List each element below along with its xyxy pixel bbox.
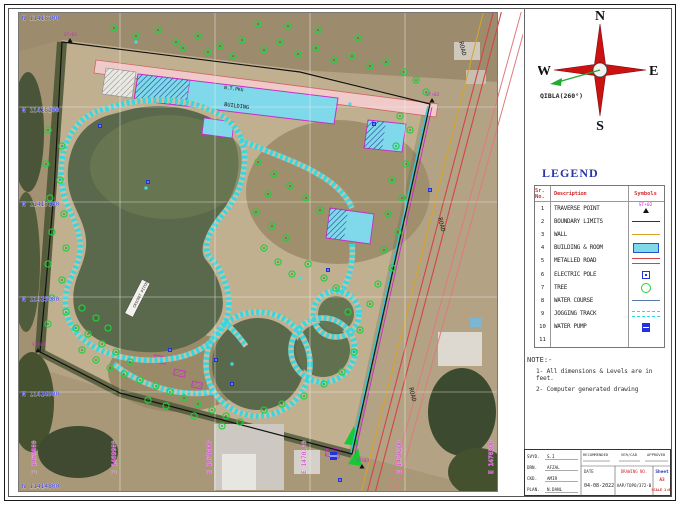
legend-row-number: 11 [535, 334, 551, 347]
tree-center [147, 399, 149, 401]
tb-drawing-no: AAP/TOPO/372-B [617, 483, 652, 488]
easting-label: E 1470100 [301, 440, 308, 474]
legend-row: 3WALL [535, 228, 664, 241]
tree-center [281, 403, 283, 405]
easting-label: E 1470300 [488, 440, 495, 474]
easting-label: E 1470000 [206, 440, 213, 474]
tree-center [193, 415, 195, 417]
tree-center [95, 317, 97, 319]
tree-center [109, 367, 111, 369]
legend-row-description: JOGGING TRACK [551, 308, 629, 321]
site-map: ST+01ST+02ST+03ST+04 ROADROADROADB.T.PKG… [18, 12, 523, 492]
legend-row-description: METALLED ROAD [551, 255, 629, 268]
tree-center [61, 145, 63, 147]
tree-center [113, 27, 115, 29]
tree-center [353, 351, 355, 353]
legend-table: Sr. No. Description Symbols 1TRAVERSE PO… [534, 185, 665, 348]
legend-row-symbol [629, 242, 662, 255]
tree-center [232, 55, 234, 57]
tree-center [47, 263, 49, 265]
tree-center [315, 47, 317, 49]
tree-center [333, 59, 335, 61]
tb-row-value: AMIR [547, 476, 558, 481]
legend-row-symbol [629, 294, 662, 307]
note-item: 1- All dimensions & Levels are in feet. [536, 368, 669, 382]
notes-items: 1- All dimensions & Levels are in feet.2… [527, 368, 669, 393]
water-point-symbol [135, 41, 138, 44]
legend-row-symbol [629, 281, 662, 294]
tree-center [289, 185, 291, 187]
tree-center [51, 231, 53, 233]
water-course-symbol [632, 300, 660, 301]
legend: LEGEND Sr. No. Description Symbols 1TRAV… [534, 166, 665, 348]
tree-center [377, 283, 379, 285]
northing-label: N 11415000 [22, 296, 60, 303]
boundary-symbol [632, 221, 660, 222]
legend-title: LEGEND [542, 166, 665, 181]
tree-center [165, 405, 167, 407]
legend-row-description: BOUNDARY LIMITS [551, 215, 629, 228]
electric-pole-dot [215, 359, 216, 360]
legend-row-description: WATER COURSE [551, 294, 629, 307]
legend-row: 8WATER COURSE [535, 294, 664, 307]
electric-pole-dot [99, 125, 100, 126]
legend-row-number: 10 [535, 321, 551, 334]
northing-label: N 11415100 [22, 201, 60, 208]
tb-row-label: CKD. [527, 476, 537, 481]
tree-center [225, 415, 227, 417]
tree-center [385, 61, 387, 63]
tb-row-value: S.I [547, 454, 555, 459]
tree-center [157, 29, 159, 31]
tree-center [81, 307, 83, 309]
tree-center [323, 383, 325, 385]
easting-label: E 1469900 [111, 440, 118, 474]
tree-center [65, 311, 67, 313]
northing-label: N 11414900 [22, 391, 60, 398]
electric-pole-dot [327, 269, 328, 270]
electric-pole-dot [429, 189, 430, 190]
tree-center [135, 35, 137, 37]
tree-center [305, 197, 307, 199]
legend-row: 4BUILDING & ROOM [535, 242, 664, 255]
easting-label: E 1470200 [396, 440, 403, 474]
compass-s: S [596, 119, 604, 132]
tree-center [63, 213, 65, 215]
tree-center [197, 35, 199, 37]
legend-row-symbol [629, 268, 662, 281]
electric-pole-dot [147, 181, 148, 182]
legend-row-symbol [629, 228, 662, 241]
tree-center [59, 179, 61, 181]
tree-center [267, 193, 269, 195]
qibla-label: QIBLA(260°) [540, 92, 583, 100]
legend-row-description: TREE [551, 281, 629, 294]
tree-center [297, 53, 299, 55]
tree-center [347, 311, 349, 313]
title-block: SVYD.S.IDRN.AFZALCKD.AMIRPLAN.N.DANL REC… [524, 449, 671, 496]
legend-row-number: 6 [535, 268, 551, 281]
traverse-point-label: ST+02 [426, 92, 440, 98]
legend-body: 1TRAVERSE POINTST+022BOUNDARY LIMITS3WAL… [535, 202, 664, 347]
water-pump-symbol [642, 323, 650, 332]
tb-date: 04-08-2022 [584, 483, 614, 489]
tree-center [277, 261, 279, 263]
tree-center [359, 329, 361, 331]
legend-row-number: 4 [535, 242, 551, 255]
tree-center [307, 263, 309, 265]
legend-row-symbol [629, 255, 662, 268]
legend-header-row: Sr. No. Description Symbols [535, 186, 664, 202]
tree-center [139, 379, 141, 381]
tree-center [341, 371, 343, 373]
tb-row-label: DRN. [527, 465, 537, 470]
electric-pole-dot [169, 349, 170, 350]
tree-center [369, 303, 371, 305]
note-item: 2- Computer generated drawing [536, 386, 669, 393]
tree-symbol [641, 283, 651, 293]
water-pump-symbol-inner [643, 327, 649, 328]
electric-pole-dot [339, 479, 340, 480]
compass-e: E [649, 64, 658, 79]
tree-center [395, 145, 397, 147]
building-right [364, 120, 406, 152]
tb-scale: SCALE 1:80 [651, 488, 671, 492]
wall-symbol [632, 234, 660, 235]
site-map-svg: ST+01ST+02ST+03ST+04 ROADROADROADB.T.PKG… [18, 12, 523, 492]
tree-center [65, 247, 67, 249]
legend-row-symbol [629, 215, 662, 228]
tb-sheet-label: Sheet [655, 469, 669, 475]
water-pump-symbol [330, 452, 337, 460]
tree-center [129, 361, 131, 363]
round-lawn-large [212, 318, 304, 410]
tree-center [409, 129, 411, 131]
legend-row: 7TREE [535, 281, 664, 294]
tree-center [107, 327, 109, 329]
legend-row-description: TRAVERSE POINT [551, 202, 629, 215]
tb-vercad: VER/CAD [621, 452, 638, 457]
easting-label: E 1469800 [31, 440, 38, 474]
legend-row-description: ELECTRIC POLE [551, 268, 629, 281]
legend-row-number: 8 [535, 294, 551, 307]
compass-w: W [538, 64, 551, 79]
traverse-point-label: ST+04 [32, 342, 46, 348]
traverse-point-label: ST+01 [64, 32, 78, 38]
tree-center [219, 45, 221, 47]
tree-center [81, 349, 83, 351]
tree-center [399, 115, 401, 117]
legend-row-number: 5 [535, 255, 551, 268]
tree-center [415, 79, 417, 81]
tree-center [197, 403, 199, 405]
legend-row: 1TRAVERSE POINTST+02 [535, 202, 664, 215]
legend-row-number: 7 [535, 281, 551, 294]
tb-recommended: RECOMMENDED [583, 452, 609, 457]
tree-center [207, 51, 209, 53]
legend-row-number: 1 [535, 202, 551, 215]
tree-center [403, 71, 405, 73]
legend-col-srno: Sr. No. [535, 186, 551, 201]
water-point-symbol [231, 363, 234, 366]
tree-center [387, 213, 389, 215]
tree-center [169, 391, 171, 393]
tree-center [405, 163, 407, 165]
legend-row: 6ELECTRIC POLE [535, 268, 664, 281]
tb-sheet: A3 [659, 477, 665, 483]
tree-center [49, 197, 51, 199]
metalled-road-symbol [632, 258, 660, 264]
drawing-sheet: ST+01ST+02ST+03ST+04 ROADROADROADB.T.PKG… [0, 0, 680, 505]
northing-label: N 11415200 [22, 107, 60, 114]
notes: NOTE:- 1- All dimensions & Levels are in… [527, 356, 669, 393]
tree-center [397, 231, 399, 233]
legend-row-number: 2 [535, 215, 551, 228]
tree-center [323, 277, 325, 279]
building-symbol [633, 243, 659, 253]
satellite-terrain [18, 12, 508, 492]
tree-center [61, 279, 63, 281]
tree-center [391, 267, 393, 269]
tree-center [211, 409, 213, 411]
tree-center [263, 409, 265, 411]
tree-center [279, 41, 281, 43]
electric-pole-symbol-inner [645, 274, 647, 276]
tree-center [357, 37, 359, 39]
tree-center [369, 65, 371, 67]
tb-date-label: DATE [584, 469, 594, 474]
tree-center [287, 25, 289, 27]
tb-row-value: AFZAL [547, 465, 560, 470]
tree-center [255, 211, 257, 213]
water-point-symbol [145, 187, 148, 190]
legend-col-description: Description [551, 186, 629, 201]
traverse-symbol: ST+02 [639, 204, 653, 214]
legend-col-symbols: Symbols [629, 186, 662, 201]
jogging-track-symbol [632, 311, 660, 317]
tree-center [155, 385, 157, 387]
tree-center [239, 421, 241, 423]
tree-center [95, 359, 97, 361]
tree-center [319, 209, 321, 211]
tree-center [263, 247, 265, 249]
tree-center [263, 49, 265, 51]
legend-row-symbol: ST+02 [629, 202, 662, 215]
tree-center [257, 161, 259, 163]
electric-pole-dot [373, 123, 374, 124]
northing-label: N 11415300 [22, 15, 60, 22]
tb-row-value: N.DANL [547, 487, 563, 492]
legend-row: 5METALLED ROAD [535, 255, 664, 268]
legend-row-description [551, 334, 629, 347]
tree-center [285, 237, 287, 239]
northing-label: N 11414800 [22, 483, 60, 490]
tb-approved: APPROVED [647, 452, 666, 457]
legend-row-number: 3 [535, 228, 551, 241]
legend-row-description: WATER PUMP [551, 321, 629, 334]
tree-center [175, 41, 177, 43]
legend-row-symbol [629, 334, 662, 347]
legend-row: 2BOUNDARY LIMITS [535, 215, 664, 228]
water-point-symbol [299, 277, 302, 280]
electric-pole-symbol [642, 271, 650, 279]
tree-center [241, 39, 243, 41]
panel-divider [524, 8, 525, 497]
tree-center [257, 23, 259, 25]
tree-center [351, 55, 353, 57]
tree-center [221, 425, 223, 427]
building-mid [326, 208, 374, 244]
traverse-point-label: ST+03 [356, 458, 370, 464]
tree-center [182, 47, 184, 49]
traverse-symbol-triangle [643, 208, 649, 213]
tree-center [291, 273, 293, 275]
tree-center [47, 323, 49, 325]
legend-row: 10WATER PUMP [535, 321, 664, 334]
legend-row-description: BUILDING & ROOM [551, 242, 629, 255]
legend-row: 9JOGGING TRACK [535, 308, 664, 321]
tree-center [183, 397, 185, 399]
tree-center [47, 129, 49, 131]
tb-row-label: SVYD. [527, 454, 540, 459]
tree-center [391, 179, 393, 181]
tree-center [317, 29, 319, 31]
tree-center [75, 327, 77, 329]
legend-row-symbol [629, 308, 662, 321]
tb-drawing-no-label: DRAWING NO. [621, 469, 648, 474]
tree-center [273, 173, 275, 175]
tree-center [401, 197, 403, 199]
tree-center [335, 287, 337, 289]
legend-row: 11 [535, 334, 664, 347]
compass-rose: N S E W QIBLA(260°) [538, 8, 662, 132]
tree-center [115, 351, 117, 353]
tree-center [123, 373, 125, 375]
tb-row-label: PLAN. [527, 487, 540, 492]
compass-n: N [595, 9, 605, 24]
tree-center [101, 343, 103, 345]
notes-title: NOTE:- [527, 356, 669, 364]
legend-row-number: 9 [535, 308, 551, 321]
legend-row-description: WALL [551, 228, 629, 241]
tree-center [271, 225, 273, 227]
tree-center [87, 333, 89, 335]
legend-row-symbol [629, 321, 662, 334]
tree-center [383, 249, 385, 251]
tree-center [45, 163, 47, 165]
electric-pole-dot [231, 383, 232, 384]
water-point-symbol [349, 103, 352, 106]
tree-center [303, 395, 305, 397]
